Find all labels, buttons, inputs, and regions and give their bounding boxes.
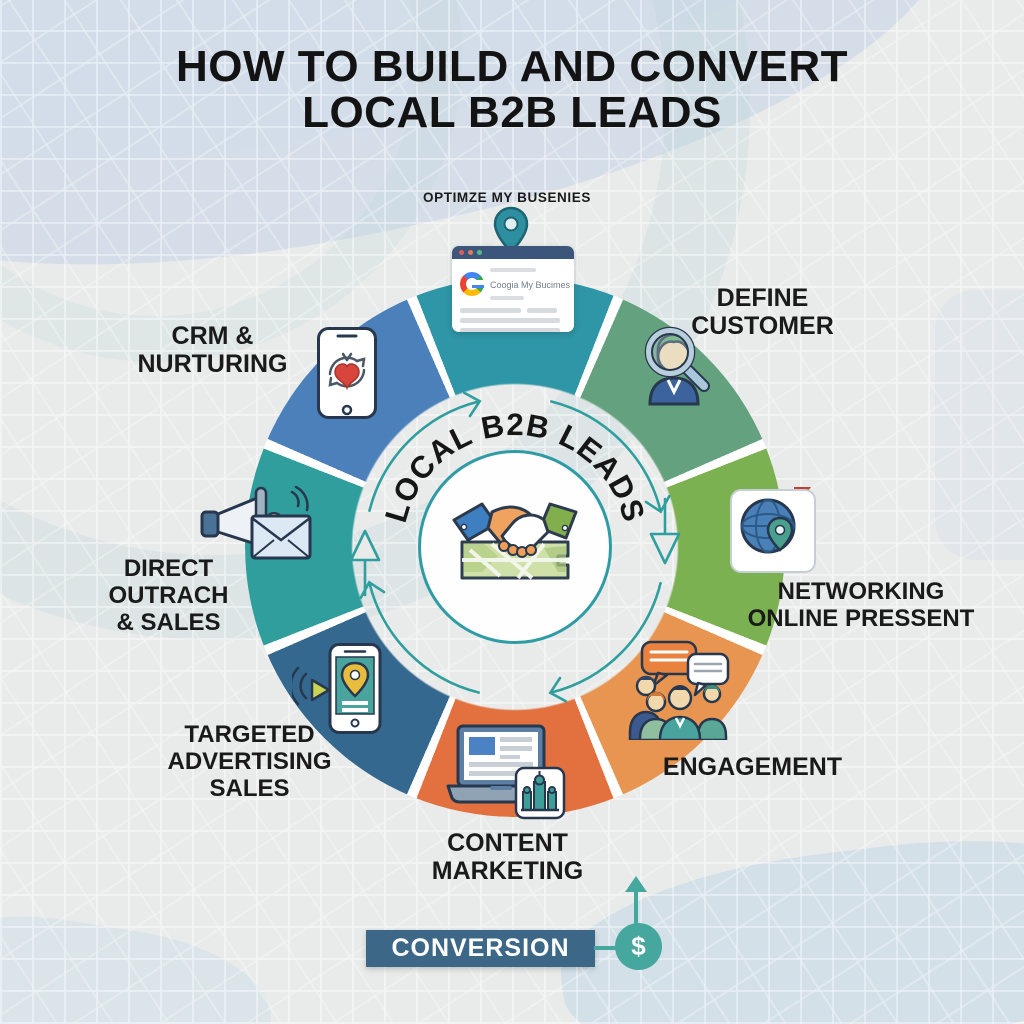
phone-heart-cycle-icon — [316, 326, 378, 420]
page-title-line-2: LOCAL B2B LEADS — [0, 90, 1024, 136]
building-card-icon — [516, 768, 564, 818]
page-title-line-1: HOW TO BUILD AND CONVERT — [0, 44, 1024, 90]
label-crm-nurturing: CRM & NURTURING — [105, 322, 320, 378]
globe-location-card-icon — [728, 484, 818, 576]
google-business-card-icon: Coogia My Bucimes — [452, 246, 574, 332]
google-g-icon — [460, 272, 484, 296]
people-chat-icon — [624, 640, 732, 740]
handshake-over-map-icon — [448, 490, 582, 582]
label-define-customer: DEFINE CUSTOMER — [655, 284, 870, 340]
laptop-content-icon — [444, 724, 568, 820]
label-content-marketing: CONTENT MARKETING — [400, 829, 615, 885]
label-optimize-my-business: OPTIMZE MY BUSENIES — [352, 190, 662, 205]
up-arrow-icon — [625, 876, 647, 892]
map-water-bottom-left — [0, 898, 281, 1024]
window-dot-red — [459, 250, 464, 255]
label-networking-online-presence: NETWORKING ONLINE PRESSENT — [736, 579, 986, 633]
up-arrow-stem — [634, 892, 638, 925]
placeholder-text-lines — [460, 308, 566, 332]
dollar-circle-icon: $ — [615, 923, 662, 970]
infographic-canvas: HOW TO BUILD AND CONVERT LOCAL B2B LEADS — [0, 0, 1024, 1024]
label-targeted-advertising: TARGETED ADVERTISING SALES — [142, 722, 357, 803]
label-engagement: ENGAGEMENT — [640, 753, 865, 781]
page-title: HOW TO BUILD AND CONVERT LOCAL B2B LEADS — [0, 44, 1024, 136]
browser-titlebar — [452, 246, 574, 259]
gmb-card-title: Coogia My Bucimes — [490, 280, 570, 290]
window-dot-green — [477, 250, 482, 255]
label-direct-outreach: DIRECT OUTRACH & SALES — [66, 556, 271, 637]
map-river-bottom-right — [550, 814, 1024, 1024]
conversion-banner: CONVERSION — [366, 930, 595, 967]
window-dot-red2 — [468, 250, 473, 255]
map-water-right — [935, 290, 1024, 560]
